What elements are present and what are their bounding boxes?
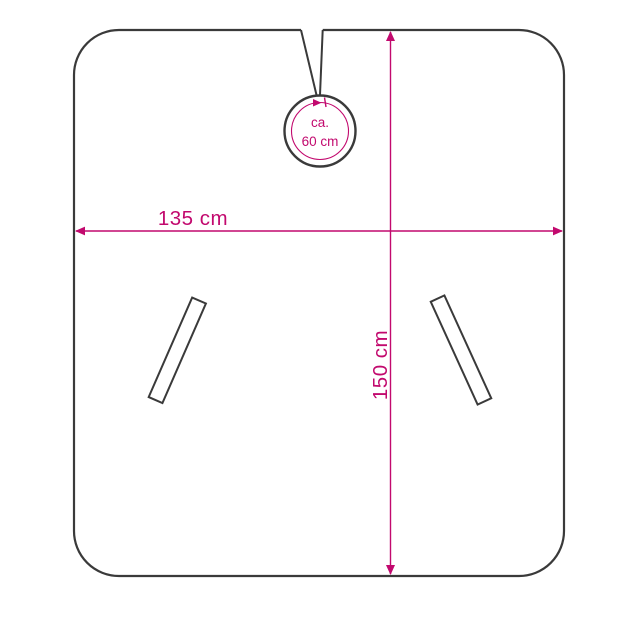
- cape-dimension-diagram: ca. 60 cm 135 cm 150 cm: [0, 0, 640, 640]
- height-arrow-bottom-icon: [386, 565, 395, 575]
- width-dimension-label: 135 cm: [158, 207, 228, 230]
- hand-slit-left: [149, 298, 206, 404]
- width-arrow-right-icon: [553, 227, 563, 236]
- height-dimension: 150 cm: [369, 31, 395, 575]
- neck-label-line1: ca.: [311, 115, 329, 130]
- height-dimension-label: 150 cm: [369, 330, 392, 400]
- diagram-svg: ca. 60 cm 135 cm 150 cm: [0, 0, 640, 640]
- neck-notch-right-line: [320, 30, 323, 95]
- neck-label-line2: 60 cm: [302, 134, 339, 149]
- height-arrow-top-icon: [386, 31, 395, 41]
- hand-slit-right: [431, 295, 492, 404]
- neck-notch-left-line: [301, 30, 317, 95]
- width-dimension: 135 cm: [75, 207, 563, 235]
- width-arrow-left-icon: [75, 227, 85, 236]
- neck-opening-circle: [285, 96, 356, 167]
